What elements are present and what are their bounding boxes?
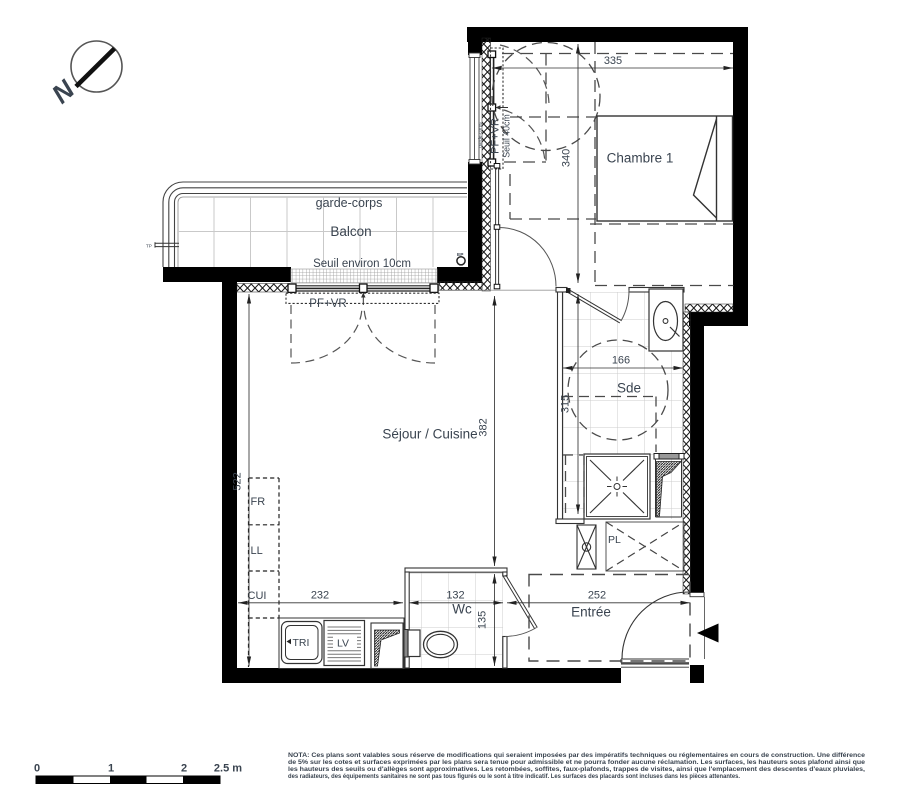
svg-text:FR: FR	[251, 496, 266, 508]
svg-text:Sde: Sde	[617, 381, 641, 396]
svg-text:Seuil environ 10cm: Seuil environ 10cm	[313, 258, 411, 270]
svg-text:EP: EP	[457, 252, 464, 258]
svg-text:252: 252	[588, 590, 606, 602]
svg-text:des radiateurs, des équipement: des radiateurs, des équipements sanitair…	[288, 773, 740, 780]
svg-text:Séjour / Cuisine: Séjour / Cuisine	[382, 427, 477, 442]
svg-text:382: 382	[478, 418, 490, 436]
svg-text:garde-corps: garde-corps	[478, 122, 484, 148]
svg-text:315: 315	[560, 395, 572, 413]
svg-text:Balcon: Balcon	[330, 224, 371, 239]
svg-text:CUI: CUI	[248, 590, 267, 602]
svg-text:Seuil 40cm: Seuil 40cm	[502, 114, 512, 158]
svg-text:135: 135	[477, 611, 489, 629]
svg-text:LL: LL	[251, 545, 263, 557]
svg-text:Entrée: Entrée	[571, 605, 611, 620]
svg-text:PL: PL	[608, 534, 621, 546]
svg-text:les hauteurs des seuils ou d'a: les hauteurs des seuils ou d'allèges son…	[288, 766, 865, 773]
svg-text:TP: TP	[146, 244, 152, 249]
svg-text:335: 335	[604, 55, 622, 67]
svg-text:LV: LV	[337, 638, 349, 650]
svg-text:Wc: Wc	[452, 602, 472, 617]
svg-text:166: 166	[612, 355, 630, 367]
svg-text:garde-corps: garde-corps	[316, 196, 383, 210]
svg-text:132: 132	[446, 590, 464, 602]
svg-text:PF+VR: PF+VR	[490, 118, 502, 154]
svg-text:TRI: TRI	[293, 637, 310, 649]
svg-text:2.5 m: 2.5 m	[214, 763, 242, 775]
svg-text:NOTA: Ces plans sont valables: NOTA: Ces plans sont valables sous réser…	[288, 752, 865, 759]
svg-text:PF+VR: PF+VR	[309, 298, 346, 310]
svg-text:0: 0	[34, 763, 40, 775]
svg-text:340: 340	[561, 149, 573, 167]
svg-text:232: 232	[311, 590, 329, 602]
svg-text:2: 2	[181, 763, 187, 775]
svg-text:1: 1	[108, 763, 114, 775]
svg-text:de 5% sur les cotes et surface: de 5% sur les cotes et surfaces exprimée…	[288, 759, 865, 766]
svg-text:522: 522	[232, 472, 244, 490]
svg-text:Chambre 1: Chambre 1	[607, 151, 674, 166]
